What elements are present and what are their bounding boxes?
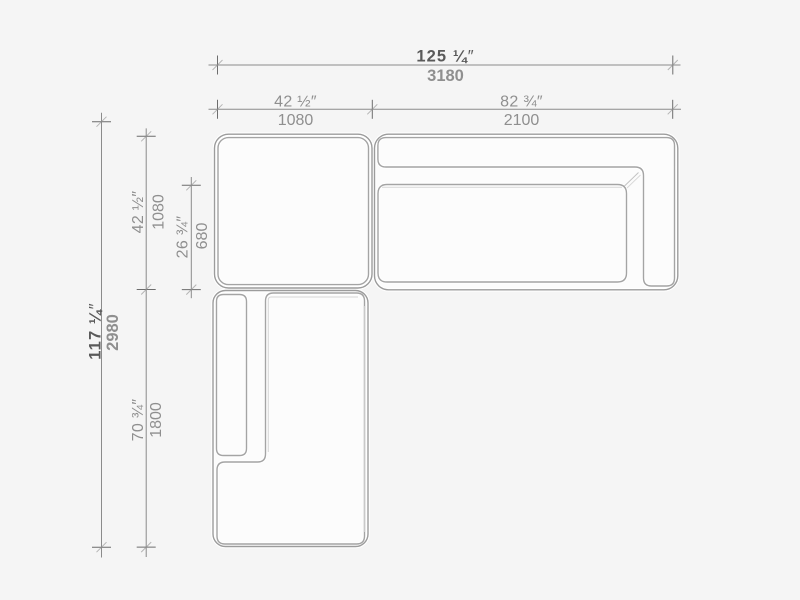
svg-text:70 ¾″: 70 ¾″ [130, 399, 147, 442]
svg-text:125 ¼″: 125 ¼″ [416, 48, 474, 66]
svg-text:117 ¼″: 117 ¼″ [87, 302, 105, 359]
svg-text:42 ½″: 42 ½″ [130, 191, 147, 234]
svg-text:680: 680 [194, 223, 211, 250]
svg-text:3180: 3180 [427, 67, 464, 85]
svg-text:42 ½″: 42 ½″ [274, 93, 317, 110]
svg-text:2100: 2100 [504, 112, 540, 129]
svg-text:26 ¾″: 26 ¾″ [174, 216, 191, 259]
svg-text:1080: 1080 [278, 112, 314, 129]
svg-text:1080: 1080 [151, 194, 168, 230]
svg-text:1800: 1800 [148, 402, 165, 438]
svg-text:2980: 2980 [104, 314, 122, 351]
svg-text:82 ¾″: 82 ¾″ [500, 93, 543, 110]
